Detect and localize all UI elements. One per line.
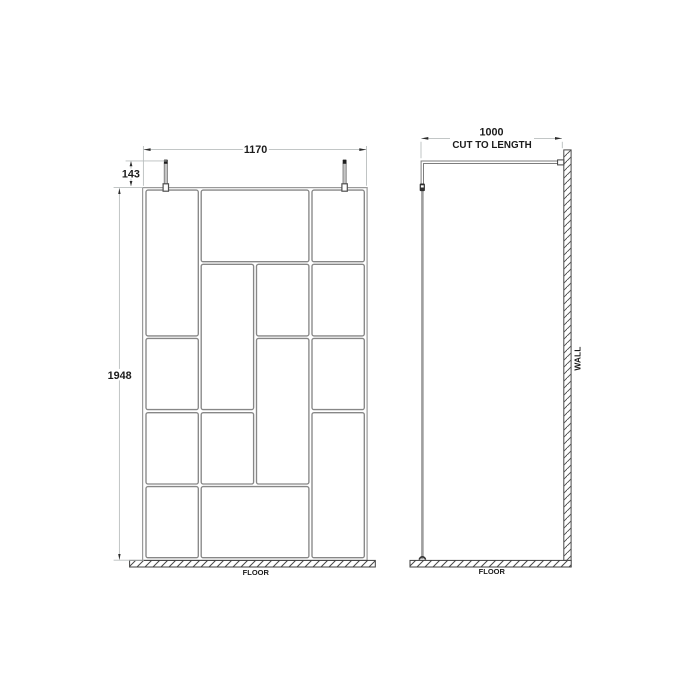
svg-text:WALL: WALL [573,347,583,371]
svg-text:CUT TO LENGTH: CUT TO LENGTH [452,140,531,151]
svg-text:1170: 1170 [244,144,267,156]
svg-text:1000: 1000 [479,127,503,139]
svg-text:FLOOR: FLOOR [243,568,270,577]
svg-text:1948: 1948 [108,370,132,382]
svg-text:FLOOR: FLOOR [479,567,506,576]
svg-text:143: 143 [122,169,140,181]
